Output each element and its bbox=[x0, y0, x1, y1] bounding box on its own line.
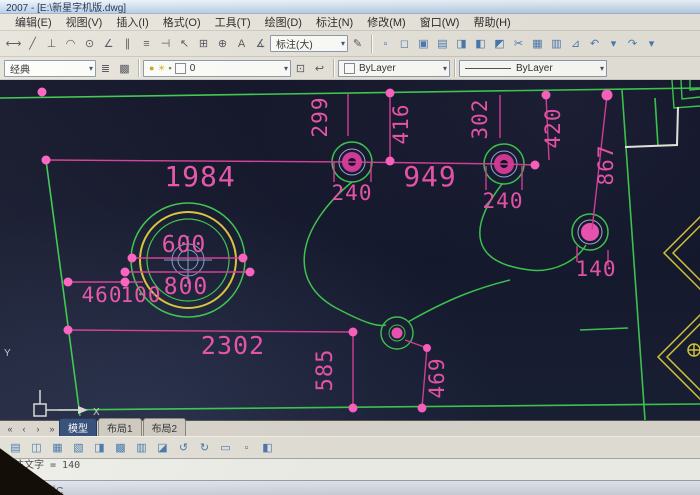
dim-text-240-left: 240 bbox=[332, 181, 373, 205]
dim-text-585: 585 bbox=[313, 349, 338, 392]
bottom-tool-6-icon[interactable]: ▩ bbox=[111, 438, 130, 457]
chevron-down-icon: ▾ bbox=[284, 64, 288, 73]
toolbar-separator bbox=[454, 59, 455, 77]
dim-text-600: 600 bbox=[162, 232, 207, 258]
toolbar-separator bbox=[333, 59, 334, 77]
bottom-tool-11-icon[interactable]: ▭ bbox=[216, 438, 235, 457]
dim-continue-icon[interactable]: ⊣ bbox=[156, 34, 175, 53]
layer-color-chip bbox=[175, 63, 186, 74]
autocad-window: 2007 - [E:\新星字机版.dwg] 编辑(E)视图(V)插入(I)格式(… bbox=[0, 0, 700, 495]
bottom-toolbar: ▤◫▦▧◨▩▥◪↺↻▭▫◧ bbox=[0, 436, 700, 458]
bottom-tool-5-icon[interactable]: ◨ bbox=[90, 438, 109, 457]
menu-item[interactable]: 绘图(D) bbox=[258, 14, 309, 30]
dim-quick-icon[interactable]: ∥ bbox=[118, 34, 137, 53]
chevron-down-icon: ▾ bbox=[600, 64, 604, 73]
dim-text-2302: 2302 bbox=[201, 331, 265, 360]
dim-leader-icon[interactable]: ↖ bbox=[175, 34, 194, 53]
white-detail-lines bbox=[625, 107, 678, 147]
dim-text-edit-icon[interactable]: ∡ bbox=[251, 34, 270, 53]
command-window[interactable]: 标注文字 = 140 命令: bbox=[0, 458, 700, 480]
layer-previous-icon[interactable]: ↩ bbox=[310, 59, 329, 78]
menu-item[interactable]: 插入(I) bbox=[109, 14, 155, 30]
dim-radius-icon[interactable]: ◠ bbox=[61, 34, 80, 53]
tab-layout2[interactable]: 布局2 bbox=[143, 418, 187, 436]
menu-item[interactable]: 窗口(W) bbox=[413, 14, 467, 30]
paste-icon[interactable]: ▥ bbox=[547, 34, 566, 53]
tab-layout1[interactable]: 布局1 bbox=[98, 418, 142, 436]
dim-text-949: 949 bbox=[403, 160, 457, 193]
layout-tabs-bar: «‹›» 模型 布局1 布局2 bbox=[0, 420, 700, 436]
redo-icon[interactable]: ↷ bbox=[623, 34, 642, 53]
bottom-tool-3-icon[interactable]: ▦ bbox=[48, 438, 67, 457]
wall-lines bbox=[0, 88, 700, 420]
color-value: ByLayer bbox=[359, 63, 439, 74]
bottom-tool-1-icon[interactable]: ▤ bbox=[6, 438, 25, 457]
dim-text-299: 299 bbox=[308, 97, 332, 138]
corner-pattern-lines bbox=[672, 80, 700, 108]
toolbar-row-layers: 经典 ▾ ≣▩ ● ☀ ▪ 0 ▾ ⊡↩ ByLayer ▾ ByLayer ▾ bbox=[0, 57, 700, 80]
drawing-canvas[interactable]: 1984 949 240 240 299 416 302 420 867 140… bbox=[0, 80, 700, 420]
linetype-value: ByLayer bbox=[516, 63, 596, 74]
status-bar: 经典工具栏C bbox=[0, 480, 700, 495]
ucs-x-label: X bbox=[93, 407, 100, 418]
cut-icon[interactable]: ✂ bbox=[509, 34, 528, 53]
dim-center-mark-icon[interactable]: ⊕ bbox=[213, 34, 232, 53]
dim-tolerance-icon[interactable]: ⊞ bbox=[194, 34, 213, 53]
toolbar-separator bbox=[138, 59, 139, 77]
menu-item[interactable]: 帮助(H) bbox=[466, 14, 517, 30]
menu-bar: 编辑(E)视图(V)插入(I)格式(O)工具(T)绘图(D)标注(N)修改(M)… bbox=[0, 14, 700, 31]
menu-item[interactable]: 编辑(E) bbox=[8, 14, 59, 30]
bottom-tool-12-icon[interactable]: ▫ bbox=[237, 438, 256, 457]
plot-icon[interactable]: ▤ bbox=[433, 34, 452, 53]
plot-preview-icon[interactable]: ◨ bbox=[452, 34, 471, 53]
dim-ordinate-icon[interactable]: ⊥ bbox=[42, 34, 61, 53]
bottom-tool-7-icon[interactable]: ▥ bbox=[132, 438, 151, 457]
color-combo[interactable]: ByLayer ▾ bbox=[338, 60, 450, 77]
dim-text-1984: 1984 bbox=[164, 160, 235, 193]
ucs-y-label: Y bbox=[4, 348, 11, 359]
layer-freeze-icon: ☀ bbox=[157, 63, 165, 74]
dim-baseline-icon[interactable]: ≡ bbox=[137, 34, 156, 53]
new-icon[interactable]: ▫ bbox=[376, 34, 395, 53]
layer-combo[interactable]: ● ☀ ▪ 0 ▾ bbox=[143, 60, 291, 77]
menu-item[interactable]: 视图(V) bbox=[59, 14, 110, 30]
bottom-tool-8-icon[interactable]: ◪ bbox=[153, 438, 172, 457]
chevron-down-icon: ▾ bbox=[89, 64, 93, 73]
dim-text-469: 469 bbox=[425, 358, 449, 399]
dim-style-combo[interactable]: 标注(大) ▾ bbox=[270, 35, 348, 52]
color-swatch bbox=[344, 63, 355, 74]
dim-angular-icon[interactable]: ∠ bbox=[99, 34, 118, 53]
linetype-combo[interactable]: ByLayer ▾ bbox=[459, 60, 607, 77]
dim-style-value: 标注(大) bbox=[276, 36, 337, 51]
cad-drawing: 1984 949 240 240 299 416 302 420 867 140… bbox=[0, 80, 700, 420]
undo-icon[interactable]: ↶ bbox=[585, 34, 604, 53]
make-object-layer-icon[interactable]: ⊡ bbox=[291, 59, 310, 78]
workspace-value: 经典 bbox=[10, 61, 85, 76]
menu-item[interactable]: 工具(T) bbox=[208, 14, 258, 30]
dim-text-140: 140 bbox=[576, 257, 617, 281]
layer-tools-right: ⊡↩ bbox=[291, 59, 329, 78]
chevron-down-icon: ▾ bbox=[443, 64, 447, 73]
workspace-combo[interactable]: 经典 ▾ bbox=[4, 60, 96, 77]
open-icon[interactable]: ◻ bbox=[395, 34, 414, 53]
dim-text-100: 100 bbox=[121, 283, 162, 307]
bottom-tool-4-icon[interactable]: ▧ bbox=[69, 438, 88, 457]
layer-tools: ≣▩ bbox=[96, 59, 134, 78]
current-layer-name: 0 bbox=[190, 63, 280, 74]
match-properties-icon[interactable]: ⊿ bbox=[566, 34, 585, 53]
chevron-down-icon: ▾ bbox=[341, 39, 345, 48]
command-history-line: 标注文字 = 140 bbox=[4, 460, 696, 471]
bottom-tool-9-icon[interactable]: ↺ bbox=[174, 438, 193, 457]
tab-model[interactable]: 模型 bbox=[59, 418, 97, 436]
bottom-tool-10-icon[interactable]: ↻ bbox=[195, 438, 214, 457]
tab-scroll-buttons: «‹›» bbox=[3, 421, 59, 436]
dim-text-416: 416 bbox=[389, 104, 413, 145]
layer-properties-icon[interactable]: ≣ bbox=[96, 59, 115, 78]
downlight-symbol-bottom bbox=[381, 317, 413, 349]
menu-item[interactable]: 格式(O) bbox=[156, 14, 208, 30]
standard-toolbar: ▫◻▣▤◨◧◩✂▦▥⊿↶▾↷▾ bbox=[376, 34, 661, 53]
copy-icon[interactable]: ▦ bbox=[528, 34, 547, 53]
window-title: 2007 - [E:\新星字机版.dwg] bbox=[6, 0, 126, 14]
ucs-icon: X Y bbox=[4, 348, 100, 418]
dim-edit-icon[interactable]: A bbox=[232, 34, 251, 53]
dim-text-867: 867 bbox=[594, 145, 618, 186]
layer-on-icon: ● bbox=[149, 63, 154, 73]
layer-lock-icon: ▪ bbox=[169, 63, 172, 73]
menu-item[interactable]: 修改(M) bbox=[360, 14, 413, 30]
bottom-tool-2-icon[interactable]: ◫ bbox=[27, 438, 46, 457]
bottom-tool-13-icon[interactable]: ◧ bbox=[258, 438, 277, 457]
linetype-sample bbox=[465, 68, 511, 69]
dimension-toolbar: ⟷╱⊥◠⊙∠∥≡⊣↖⊞⊕A∡ bbox=[4, 34, 270, 53]
dim-text-420: 420 bbox=[541, 108, 565, 149]
downlight-symbol-right bbox=[572, 214, 608, 250]
dim-text-302: 302 bbox=[468, 99, 492, 140]
dim-text-240-right: 240 bbox=[483, 189, 524, 213]
toolbar-separator bbox=[371, 35, 372, 53]
layer-states-icon[interactable]: ▩ bbox=[115, 59, 134, 78]
dim-diameter-icon[interactable]: ⊙ bbox=[80, 34, 99, 53]
menu-item[interactable]: 标注(N) bbox=[309, 14, 360, 30]
toolbar-row-dimension-standard: ⟷╱⊥◠⊙∠∥≡⊣↖⊞⊕A∡ 标注(大) ▾ ✎ ▫◻▣▤◨◧◩✂▦▥⊿↶▾↷▾ bbox=[0, 31, 700, 57]
diamond-ornaments bbox=[658, 205, 700, 409]
dim-text-460: 460 bbox=[82, 283, 123, 307]
redo-caret-icon[interactable]: ▾ bbox=[642, 34, 661, 53]
undo-caret-icon[interactable]: ▾ bbox=[604, 34, 623, 53]
dim-linear-icon[interactable]: ⟷ bbox=[4, 34, 23, 53]
dwf-icon[interactable]: ◩ bbox=[490, 34, 509, 53]
dim-text-800: 800 bbox=[164, 274, 209, 300]
dim-update-icon[interactable]: ✎ bbox=[348, 34, 367, 53]
dim-aligned-icon[interactable]: ╱ bbox=[23, 34, 42, 53]
publish-icon[interactable]: ◧ bbox=[471, 34, 490, 53]
save-icon[interactable]: ▣ bbox=[414, 34, 433, 53]
title-bar[interactable]: 2007 - [E:\新星字机版.dwg] bbox=[0, 0, 700, 14]
